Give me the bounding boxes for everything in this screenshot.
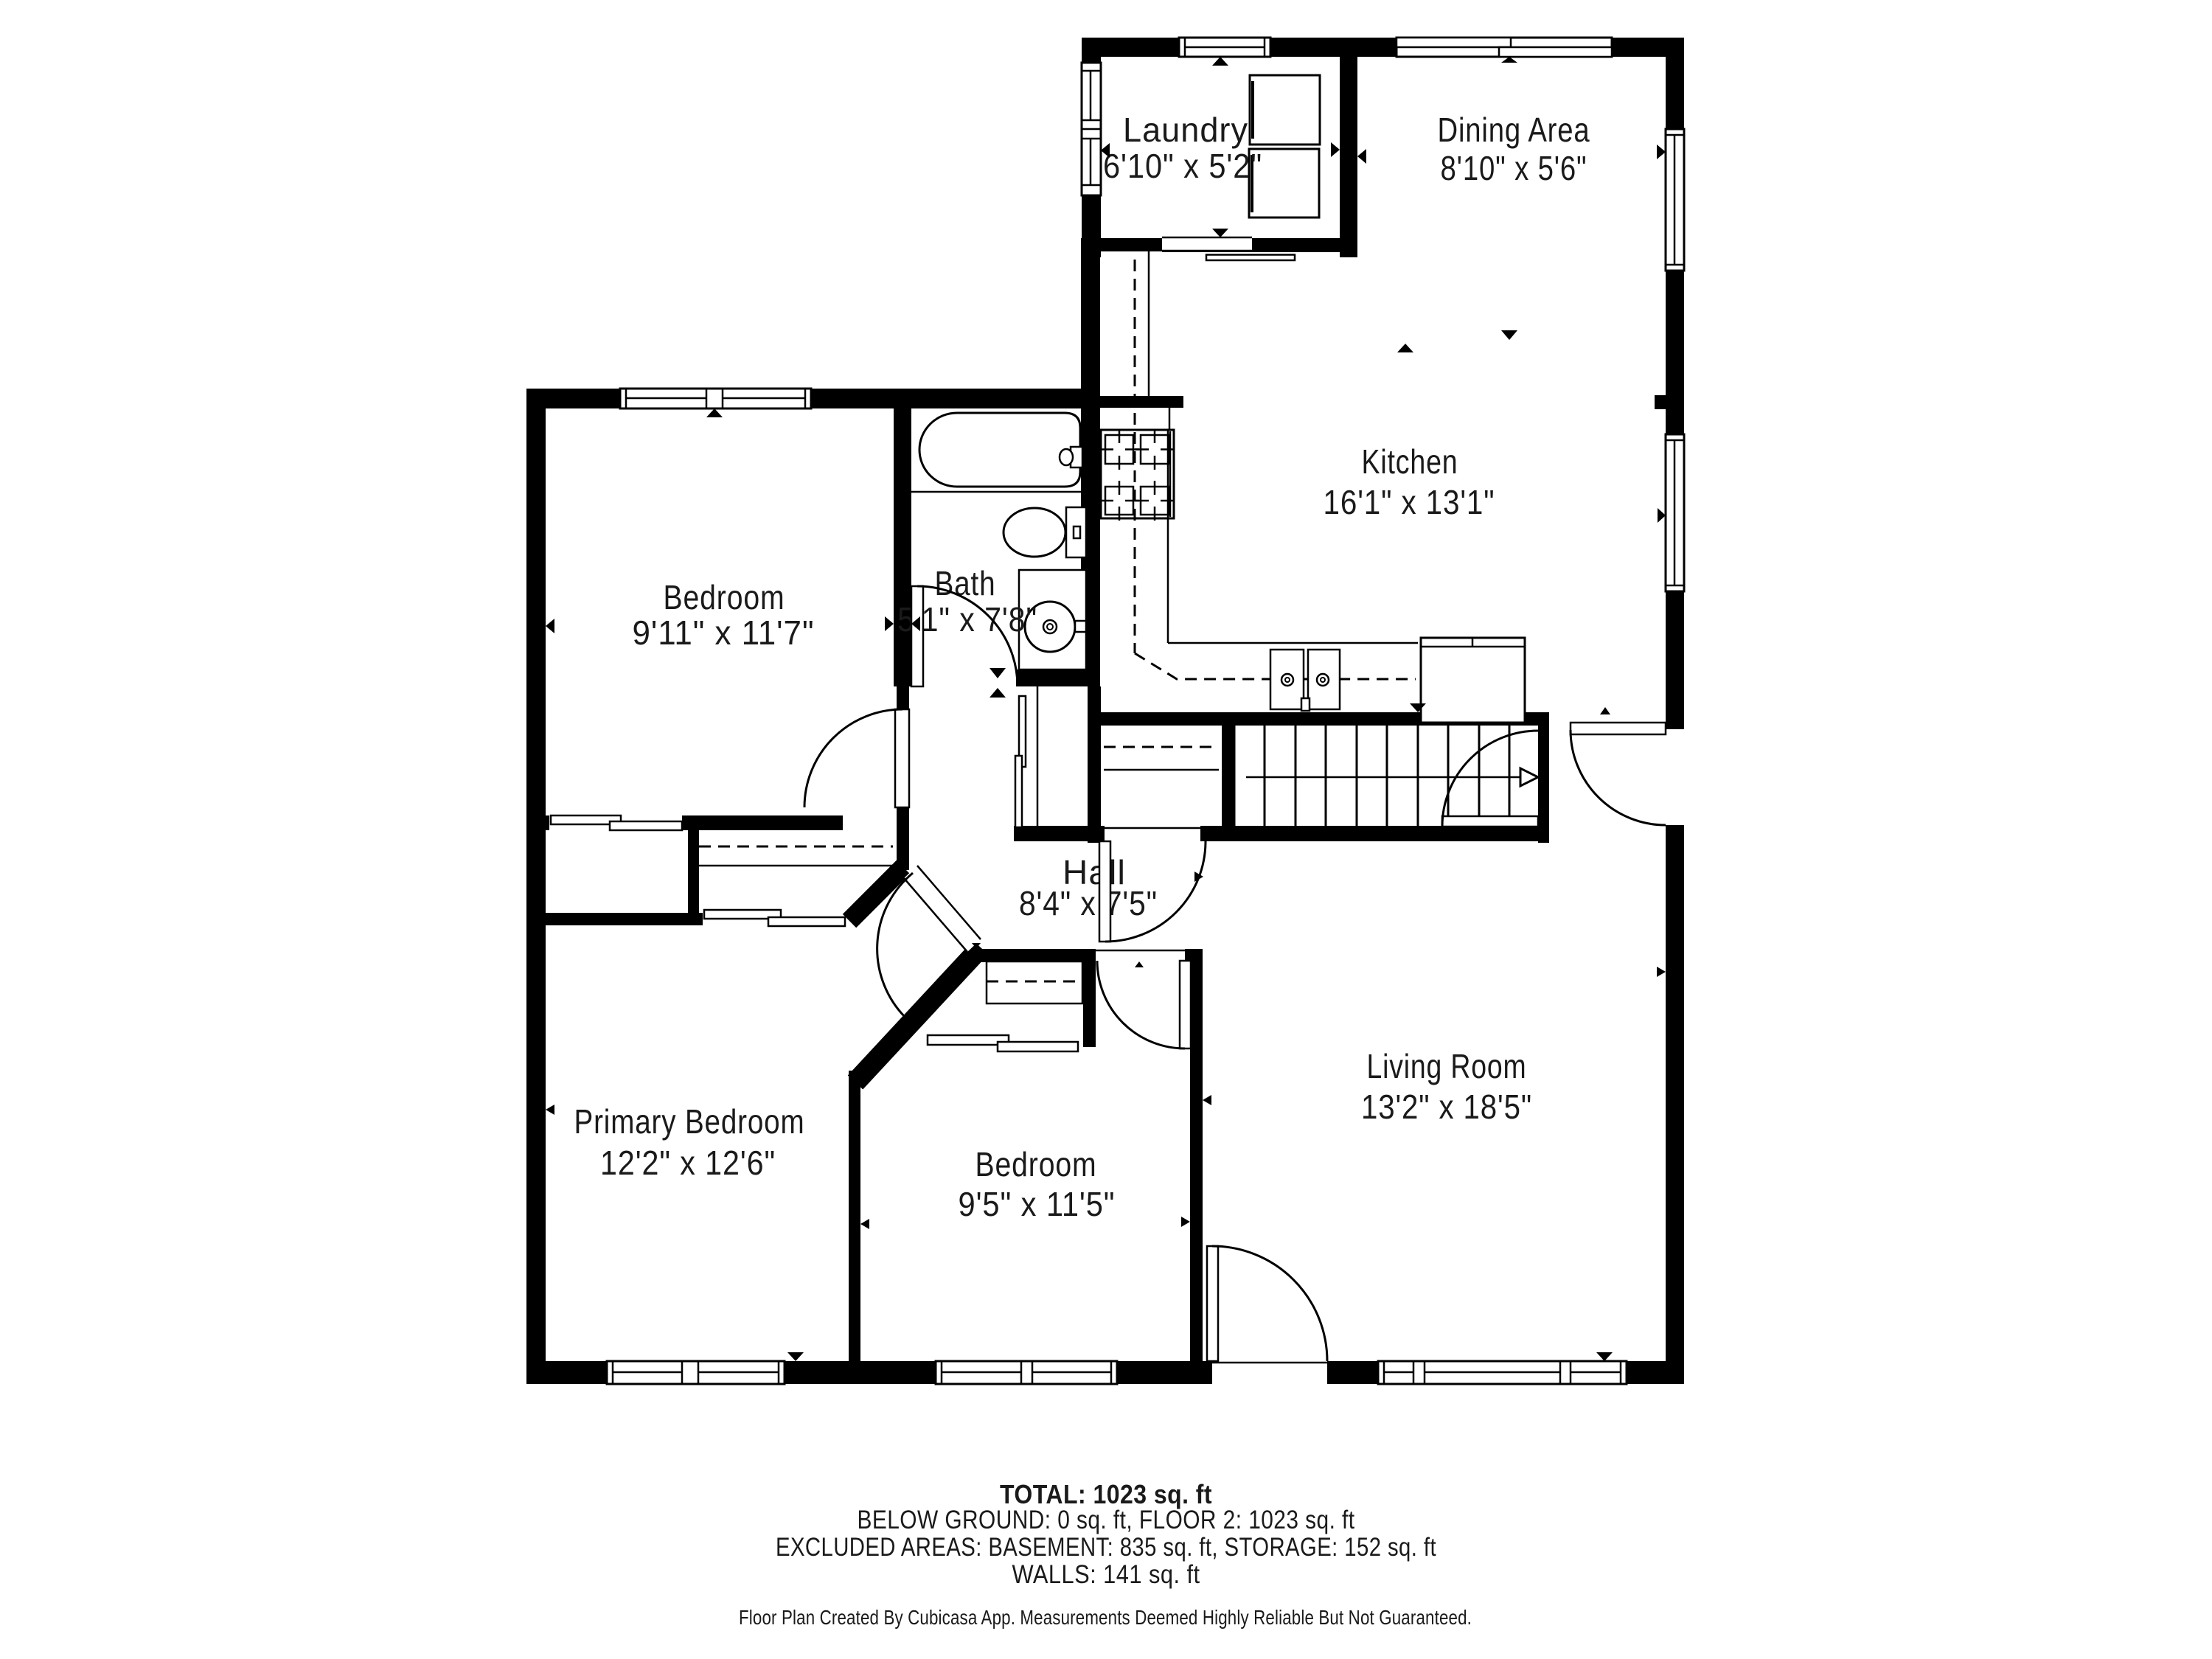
svg-text:TOTAL: 1023 sq. ft: TOTAL: 1023 sq. ft (1000, 1479, 1212, 1509)
svg-text:Bath: Bath (935, 564, 996, 602)
svg-text:Bedroom: Bedroom (664, 578, 785, 616)
svg-text:Floor Plan Created By Cubicasa: Floor Plan Created By Cubicasa App. Meas… (739, 1606, 1472, 1629)
svg-text:Laundry: Laundry (1123, 111, 1248, 149)
svg-text:Dining Area: Dining Area (1438, 111, 1590, 149)
svg-text:6'10" x 5'2": 6'10" x 5'2" (1103, 147, 1262, 185)
svg-text:13'2" x 18'5": 13'2" x 18'5" (1361, 1088, 1532, 1126)
svg-text:Bedroom: Bedroom (975, 1145, 1097, 1183)
svg-text:12'2" x 12'6": 12'2" x 12'6" (600, 1144, 776, 1182)
svg-text:8'10" x 5'6": 8'10" x 5'6" (1441, 149, 1587, 187)
svg-text:Kitchen: Kitchen (1362, 442, 1458, 481)
svg-text:8'4" x 7'5": 8'4" x 7'5" (1019, 884, 1158, 922)
svg-text:9'5" x 11'5": 9'5" x 11'5" (959, 1185, 1116, 1223)
svg-text:16'1" x 13'1": 16'1" x 13'1" (1324, 483, 1495, 521)
svg-text:EXCLUDED AREAS: BASEMENT: 835: EXCLUDED AREAS: BASEMENT: 835 sq. ft, ST… (776, 1533, 1436, 1562)
svg-text:Living Room: Living Room (1367, 1047, 1527, 1085)
svg-text:WALLS: 141 sq. ft: WALLS: 141 sq. ft (1012, 1560, 1200, 1589)
svg-text:9'11" x 11'7": 9'11" x 11'7" (633, 613, 815, 652)
svg-text:BELOW GROUND: 0 sq. ft, FLOOR: BELOW GROUND: 0 sq. ft, FLOOR 2: 1023 sq… (858, 1506, 1355, 1534)
svg-text:Primary Bedroom: Primary Bedroom (574, 1102, 805, 1141)
